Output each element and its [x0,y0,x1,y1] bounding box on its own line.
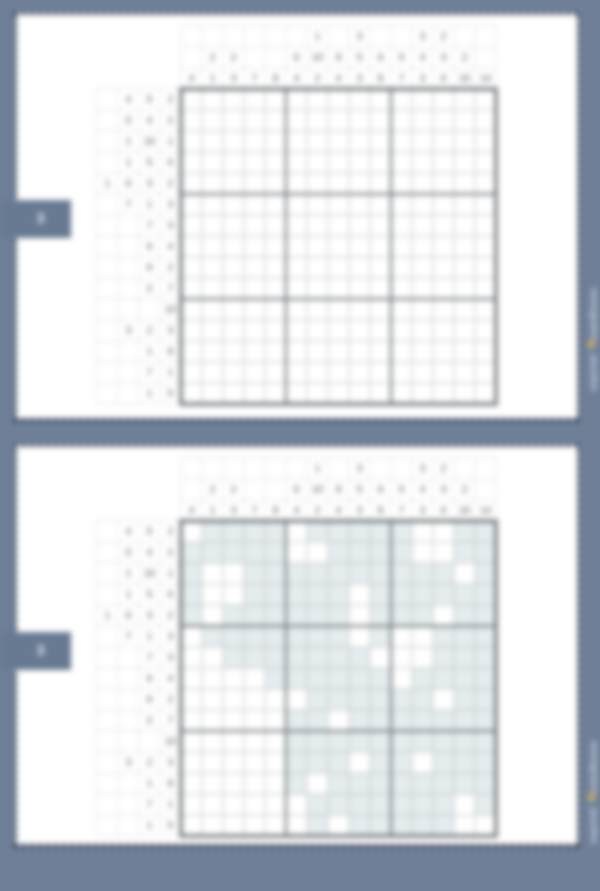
svg-text:9: 9 [336,53,342,64]
svg-text:5: 5 [126,548,132,559]
svg-text:7: 7 [126,200,132,211]
svg-text:3: 3 [420,464,426,475]
svg-text:6: 6 [168,158,174,169]
svg-text:2: 2 [168,611,174,622]
svg-text:4: 4 [420,485,426,496]
svg-text:2: 2 [147,284,153,295]
svg-text:6: 6 [147,242,153,253]
svg-text:2: 2 [210,53,216,64]
svg-text:4: 4 [336,506,342,517]
svg-text:10: 10 [144,569,156,580]
svg-text:7: 7 [147,653,153,664]
svg-text:3: 3 [420,506,426,517]
svg-text:1: 1 [168,368,174,379]
svg-text:4: 4 [126,95,132,106]
svg-text:3: 3 [231,506,237,517]
svg-text:2: 2 [168,95,174,106]
svg-text:10: 10 [312,53,324,64]
svg-text:3: 3 [231,74,237,85]
svg-text:1: 1 [126,590,132,601]
svg-text:4: 4 [147,116,153,127]
svg-text:8: 8 [378,506,384,517]
svg-text:puzzles: puzzles [588,355,599,392]
svg-text:7: 7 [147,800,153,811]
svg-text:3: 3 [126,326,132,337]
svg-text:6: 6 [441,506,447,517]
svg-text:3: 3 [168,200,174,211]
svg-text:4: 4 [336,74,342,85]
svg-text:8: 8 [378,74,384,85]
svg-text:2: 2 [462,485,468,496]
svg-text:2: 2 [147,716,153,727]
svg-text:2: 2 [168,263,174,274]
svg-text:10: 10 [459,74,471,85]
svg-text:1: 1 [210,74,216,85]
svg-text:4: 4 [168,674,174,685]
svg-text:7: 7 [147,221,153,232]
svg-text:1: 1 [147,389,153,400]
svg-text:5: 5 [168,389,174,400]
svg-text:3: 3 [168,653,174,664]
svg-text:4: 4 [294,74,300,85]
svg-text:1: 1 [147,200,153,211]
svg-text:1: 1 [210,506,216,517]
svg-text:2: 2 [462,53,468,64]
svg-text:5: 5 [399,53,405,64]
svg-text:2: 2 [168,179,174,190]
svg-text:3: 3 [357,32,363,43]
svg-text:1: 1 [105,179,111,190]
svg-text:3: 3 [168,632,174,643]
svg-text:4: 4 [189,74,195,85]
svg-text:1: 1 [147,821,153,832]
svg-text:14: 14 [480,506,492,517]
svg-text:4: 4 [168,242,174,253]
svg-text:7: 7 [399,506,405,517]
svg-text:5: 5 [126,116,132,127]
svg-text:1: 1 [315,32,321,43]
svg-text:5: 5 [147,95,153,106]
svg-text:8: 8 [273,74,279,85]
svg-text:1: 1 [126,137,132,148]
svg-text:1: 1 [147,347,153,358]
svg-text:14: 14 [480,74,492,85]
svg-text:2: 2 [231,53,237,64]
svg-text:5: 5 [357,485,363,496]
svg-text:10: 10 [144,137,156,148]
svg-text:2: 2 [315,74,321,85]
svg-text:6: 6 [147,695,153,706]
svg-text:10: 10 [165,305,177,316]
svg-text:6: 6 [378,53,384,64]
svg-text:1: 1 [126,158,132,169]
svg-text:10: 10 [165,737,177,748]
svg-text:4: 4 [147,548,153,559]
svg-text:7: 7 [252,506,258,517]
svg-text:8: 8 [273,506,279,517]
svg-text:6: 6 [441,74,447,85]
svg-text:3: 3 [357,506,363,517]
svg-text:1: 1 [168,800,174,811]
svg-text:1: 1 [105,611,111,622]
svg-text:2: 2 [315,506,321,517]
svg-text:2: 2 [147,758,153,769]
svg-text:7: 7 [399,74,405,85]
svg-text:puzzles: puzzles [588,808,599,845]
svg-text:9: 9 [336,485,342,496]
svg-text:3: 3 [357,74,363,85]
svg-text:8: 8 [168,347,174,358]
svg-text:10: 10 [459,506,471,517]
svg-text:2: 2 [168,695,174,706]
svg-text:5: 5 [147,158,153,169]
svg-text:6: 6 [168,590,174,601]
svg-text:3: 3 [441,53,447,64]
svg-text:3: 3 [126,758,132,769]
svg-text:1: 1 [126,569,132,580]
svg-text:7: 7 [252,74,258,85]
svg-text:2: 2 [210,485,216,496]
svg-text:5: 5 [168,821,174,832]
svg-text:2: 2 [168,116,174,127]
svg-text:4: 4 [189,506,195,517]
svg-text:4: 4 [294,506,300,517]
svg-text:1: 1 [168,137,174,148]
svg-text:7: 7 [126,632,132,643]
svg-text:6: 6 [294,485,300,496]
svg-text:5: 5 [147,527,153,538]
svg-text:3: 3 [441,485,447,496]
svg-text:2: 2 [168,527,174,538]
svg-text:3: 3 [420,74,426,85]
svg-text:6: 6 [147,674,153,685]
svg-text:3: 3 [168,326,174,337]
svg-text:2: 2 [168,548,174,559]
svg-text:3: 3 [357,464,363,475]
svg-text:5: 5 [147,590,153,601]
svg-text:nonograms: nonograms [588,288,599,343]
svg-text:2: 2 [231,485,237,496]
svg-text:5: 5 [357,53,363,64]
svg-text:7: 7 [168,716,174,727]
svg-text:5: 5 [399,485,405,496]
svg-text:2: 2 [147,326,153,337]
svg-text:6: 6 [294,53,300,64]
svg-text:3: 3 [420,32,426,43]
svg-text:1: 1 [147,779,153,790]
svg-text:7: 7 [147,368,153,379]
svg-text:4: 4 [126,527,132,538]
svg-text:nonograms: nonograms [588,741,599,796]
svg-text:1: 1 [315,464,321,475]
svg-text:7: 7 [168,284,174,295]
svg-text:6: 6 [378,485,384,496]
svg-text:3: 3 [168,221,174,232]
svg-text:6: 6 [126,179,132,190]
svg-text:3: 3 [147,179,153,190]
svg-text:1: 1 [147,632,153,643]
svg-text:3: 3 [168,758,174,769]
svg-text:2: 2 [441,464,447,475]
svg-text:10: 10 [312,485,324,496]
svg-text:1: 1 [168,569,174,580]
svg-text:2: 2 [441,32,447,43]
svg-text:8: 8 [168,779,174,790]
svg-text:4: 4 [420,53,426,64]
svg-text:3: 3 [147,611,153,622]
svg-text:6: 6 [126,611,132,622]
svg-text:6: 6 [147,263,153,274]
